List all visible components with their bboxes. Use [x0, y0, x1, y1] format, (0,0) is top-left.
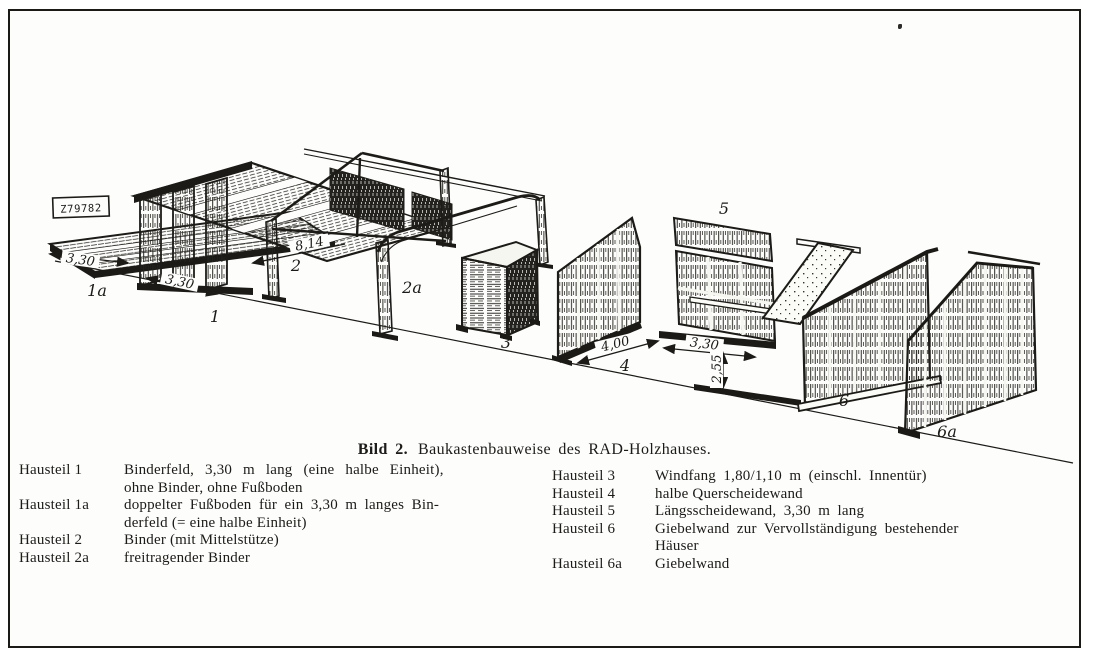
legend-line: Giebelwand — [655, 556, 1072, 574]
legend-entry-hausteil-3: Hausteil 3 Windfang 1,80/1,10 m (einschl… — [552, 468, 1072, 486]
legend-line: derfeld (= eine halbe Einheit) — [124, 515, 549, 533]
legend-line: halbe Querscheidewand — [655, 486, 1072, 504]
legend-right-column: Hausteil 3 Windfang 1,80/1,10 m (einschl… — [552, 468, 1072, 573]
legend-term: Hausteil 4 — [552, 486, 655, 504]
legend-term: Hausteil 2 — [19, 532, 124, 550]
legend-line: freitragender Binder — [124, 550, 549, 568]
caption-number: Bild 2. — [358, 441, 408, 458]
legend-term: Hausteil 6 — [552, 521, 655, 539]
caption-title: Baukastenbauweise des RAD-Holzhauses. — [418, 441, 711, 458]
legend-term: Hausteil 3 — [552, 468, 655, 486]
legend-term: Hausteil 6a — [552, 556, 655, 574]
legend-line: Binderfeld, 3,30 m lang (eine halbe Einh… — [124, 462, 549, 480]
legend-entry-hausteil-5: Hausteil 5 Längsscheidewand, 3,30 m lang — [552, 503, 1072, 521]
legend-line: Binder (mit Mittelstütze) — [124, 532, 549, 550]
legend-line: ohne Binder, ohne Fußboden — [124, 480, 549, 498]
legend-entry-hausteil-2a: Hausteil 2a freitragender Binder — [19, 550, 549, 568]
legend-term: Hausteil 1a — [19, 497, 124, 515]
legend-term: Hausteil 1 — [19, 462, 124, 480]
legend-entry-hausteil-4: Hausteil 4 halbe Querscheidewand — [552, 486, 1072, 504]
legend-entry-hausteil-2: Hausteil 2 Binder (mit Mittelstütze) — [19, 532, 549, 550]
legend-entry-hausteil-6a: Hausteil 6a Giebelwand — [552, 556, 1072, 574]
legend-term: Hausteil 5 — [552, 503, 655, 521]
legend-line: Giebelwand zur Vervollständigung bestehe… — [655, 521, 1072, 539]
legend-left-column: Hausteil 1 Binderfeld, 3,30 m lang (eine… — [19, 462, 549, 567]
legend-line: Längsscheidewand, 3,30 m lang — [655, 503, 1072, 521]
scan-artifact — [898, 24, 902, 29]
legend-entry-hausteil-1a: Hausteil 1a doppelter Fußboden für ein 3… — [19, 497, 549, 532]
scanned-page: Z79782 3,30 3,30 8,14 — [0, 0, 1100, 659]
legend-line: Windfang 1,80/1,10 m (einschl. Innentür) — [655, 468, 1072, 486]
figure-caption: Bild 2.Baukastenbauweise des RAD-Holzhau… — [0, 441, 1069, 459]
legend-entry-hausteil-6: Hausteil 6 Giebelwand zur Vervollständig… — [552, 521, 1072, 556]
legend-line: doppelter Fußboden für ein 3,30 m langes… — [124, 497, 549, 515]
legend-line: Häuser — [655, 538, 1072, 556]
legend-entry-hausteil-1: Hausteil 1 Binderfeld, 3,30 m lang (eine… — [19, 462, 549, 497]
legend-term: Hausteil 2a — [19, 550, 124, 568]
